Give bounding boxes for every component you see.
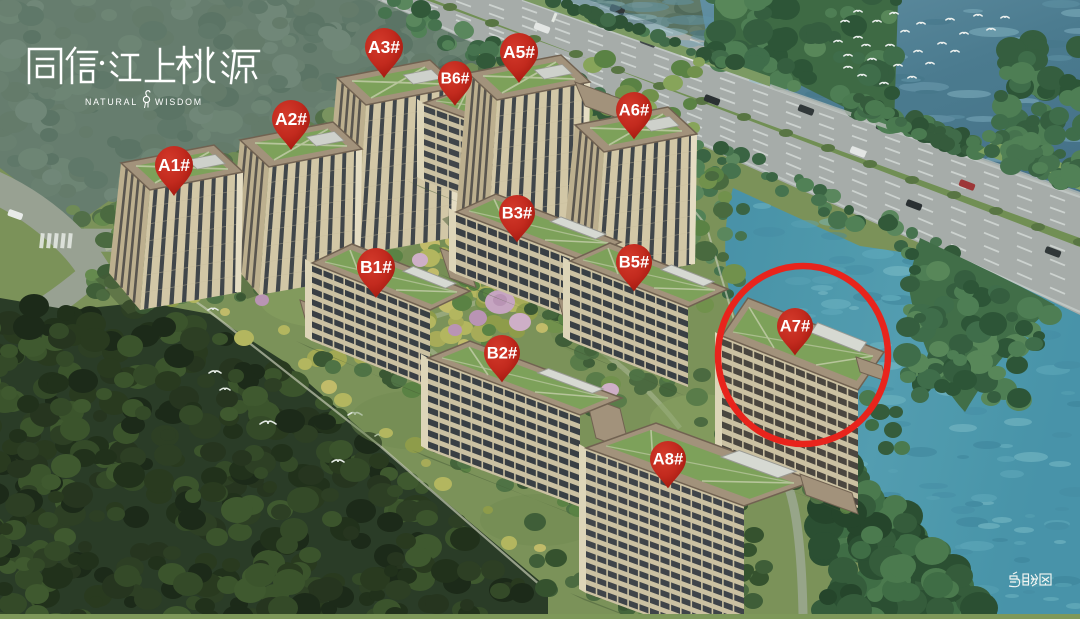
- svg-text:A8#: A8#: [653, 450, 683, 469]
- svg-text:WISDOM: WISDOM: [155, 97, 203, 107]
- svg-text:B5#: B5#: [619, 253, 649, 272]
- svg-text:A2#: A2#: [275, 109, 307, 129]
- svg-text:A7#: A7#: [780, 317, 810, 336]
- svg-text:B2#: B2#: [487, 344, 517, 363]
- svg-text:A6#: A6#: [619, 101, 649, 120]
- svg-text:B1#: B1#: [360, 257, 392, 277]
- svg-text:A3#: A3#: [368, 37, 400, 57]
- svg-text:B6#: B6#: [441, 70, 470, 87]
- svg-text:NATURAL: NATURAL: [85, 97, 138, 107]
- svg-text:B3#: B3#: [502, 204, 532, 223]
- svg-text:A5#: A5#: [503, 42, 535, 62]
- svg-text:A1#: A1#: [158, 155, 190, 175]
